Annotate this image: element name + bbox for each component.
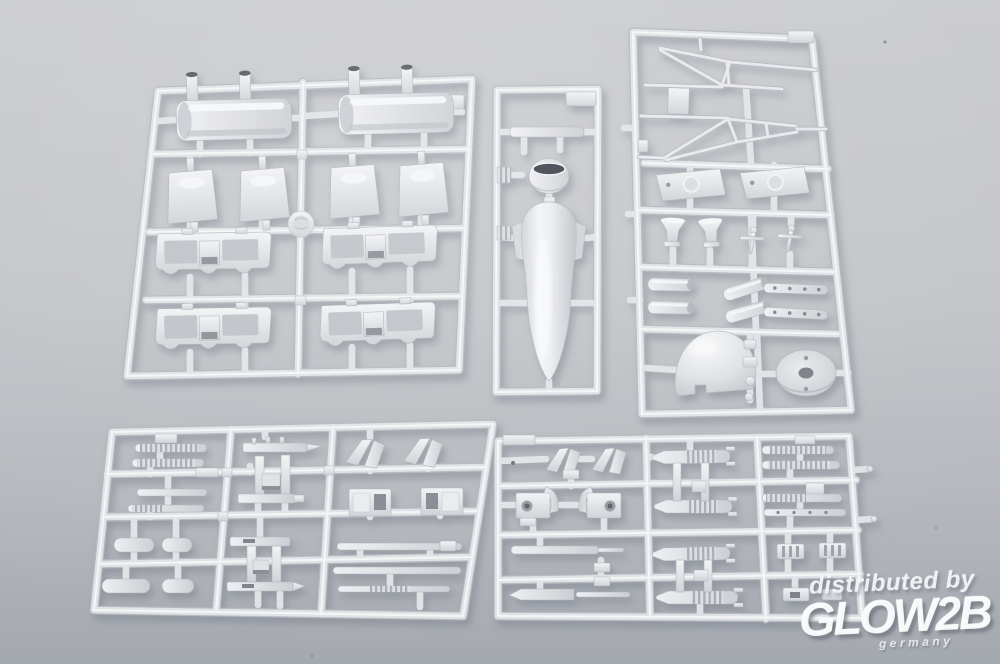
lighting-sheen: [0, 0, 1000, 664]
sprue-photo: [0, 0, 1000, 664]
photo-canvas: distributed by GLOW2B germany: [0, 0, 1000, 664]
